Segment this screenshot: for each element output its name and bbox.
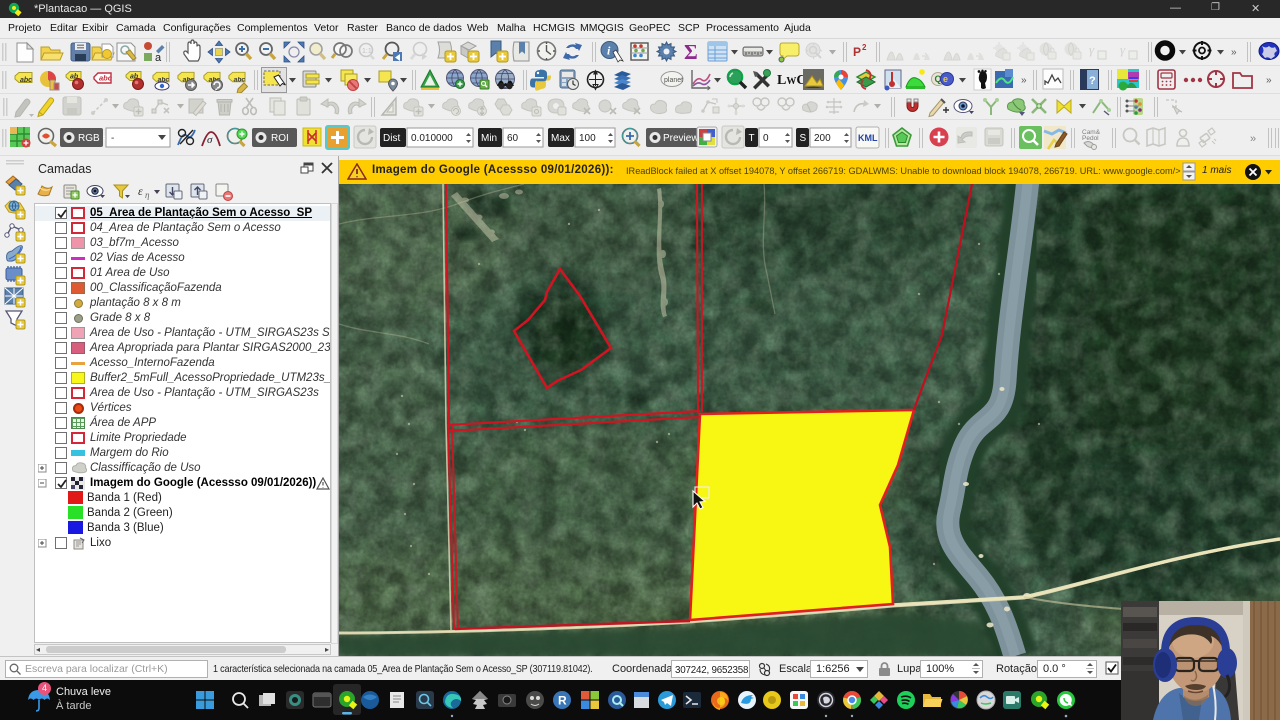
svg-text:P: P <box>853 45 861 59</box>
svg-text:ROI: ROI <box>271 133 289 144</box>
svg-text:»: » <box>1231 47 1237 58</box>
svg-text:η: η <box>145 190 150 200</box>
svg-text:Max: Max <box>551 133 570 144</box>
svg-text:0.010000: 0.010000 <box>411 133 453 144</box>
svg-text:?: ? <box>1089 75 1096 87</box>
svg-text:Dist: Dist <box>383 133 400 144</box>
svg-text:200: 200 <box>814 133 831 144</box>
svg-text:Preview: Preview <box>663 133 699 144</box>
svg-text:Min: Min <box>481 133 497 144</box>
svg-text:γ: γ <box>1089 42 1095 57</box>
svg-text:a: a <box>155 52 162 64</box>
svg-text:»: » <box>1021 75 1027 86</box>
svg-text:KML: KML <box>858 133 878 143</box>
svg-text:S: S <box>800 133 807 144</box>
svg-text:abc: abc <box>99 74 113 83</box>
svg-text:2: 2 <box>862 43 867 52</box>
svg-text:»: » <box>1266 75 1272 86</box>
svg-text:-: - <box>111 133 114 144</box>
svg-text:ε: ε <box>138 184 143 198</box>
svg-text:σ: σ <box>207 134 213 146</box>
svg-text:R: R <box>558 694 567 708</box>
svg-text:»: » <box>1250 133 1256 145</box>
svg-text:60: 60 <box>507 133 519 144</box>
svg-text:planet: planet <box>664 77 683 84</box>
svg-text:Σ: Σ <box>684 40 698 64</box>
svg-text:LWC: LWC <box>777 73 806 88</box>
svg-text:1:1: 1:1 <box>362 48 372 55</box>
svg-text:Pedol: Pedol <box>1082 135 1099 142</box>
svg-text:100: 100 <box>579 133 596 144</box>
svg-text:e: e <box>943 74 948 84</box>
svg-text:0: 0 <box>763 133 769 144</box>
svg-text:T: T <box>749 133 755 144</box>
svg-text:γ: γ <box>1120 42 1126 57</box>
svg-text:RGB =: RGB = <box>78 133 108 144</box>
